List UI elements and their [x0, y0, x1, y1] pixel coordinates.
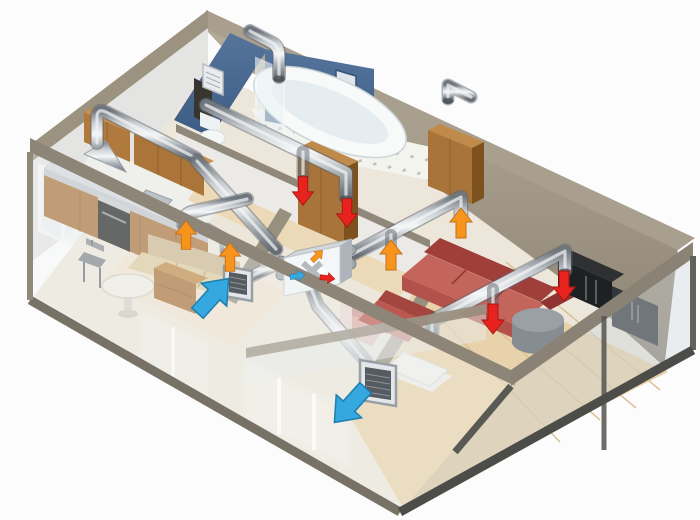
apartment-cutaway-illustration	[0, 0, 700, 520]
ventilation-scene	[0, 0, 700, 520]
